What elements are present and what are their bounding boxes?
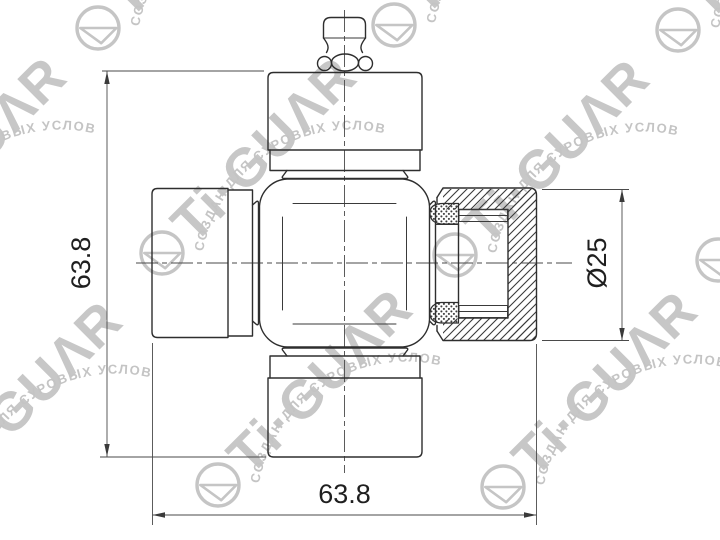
arrowhead-down bbox=[104, 444, 109, 457]
watermark-brand: Ti·GUΛR bbox=[96, 0, 305, 29]
dimension-height-label: 63.8 bbox=[66, 237, 96, 290]
watermark: Ti·GUΛR СОЗДАН ДЛЯ СУРОВЫХ УСЛОВИЙ bbox=[681, 52, 720, 328]
drawing-canvas: Ti·GUΛR СОЗДАН ДЛЯ СУРОВЫХ УСЛОВИЙ Ti·GU… bbox=[0, 0, 720, 540]
watermark-tagline: СОЗДАН ДЛЯ СУРОВЫХ УСЛОВИЙ bbox=[382, 0, 626, 82]
watermark-brand: Ti·GUΛR bbox=[392, 0, 601, 26]
technical-drawing-page: Ti·GUΛR СОЗДАН ДЛЯ СУРОВЫХ УСЛОВИЙ Ti·GU… bbox=[0, 0, 720, 540]
section-hatch-end-wall bbox=[509, 189, 537, 341]
arrowhead-right bbox=[524, 512, 537, 517]
tiguar-logo-icon bbox=[364, 0, 423, 55]
arrowhead-left bbox=[153, 512, 166, 517]
arrowhead-up bbox=[104, 72, 109, 85]
dimension-diameter: Ø25 bbox=[542, 190, 629, 341]
tiguar-logo-icon bbox=[688, 230, 720, 289]
watermark: Ti·GUΛR СОЗДАН ДЛЯ СУРОВЫХ УСЛОВИЙ bbox=[418, 47, 694, 323]
watermark-brand: Ti·GUΛR bbox=[0, 45, 78, 254]
watermark-brand: Ti·GUΛR bbox=[716, 52, 720, 261]
arrowhead-up bbox=[619, 190, 624, 203]
watermark: Ti·GUΛR СОЗДАН ДЛЯ СУРОВЫХ УСЛОВИЙ bbox=[125, 45, 401, 321]
dimension-width-label: 63.8 bbox=[318, 479, 371, 509]
svg-text:СОЗДАН ДЛЯ СУРОВЫХ УСЛОВИЙ: СОЗДАН ДЛЯ СУРОВЫХ УСЛОВИЙ bbox=[382, 0, 626, 82]
dimension-diameter-label: Ø25 bbox=[582, 237, 612, 288]
watermark: Ti·GUΛR СОЗДАН ДЛЯ СУРОВЫХ УСЛОВИЙ bbox=[0, 289, 167, 540]
